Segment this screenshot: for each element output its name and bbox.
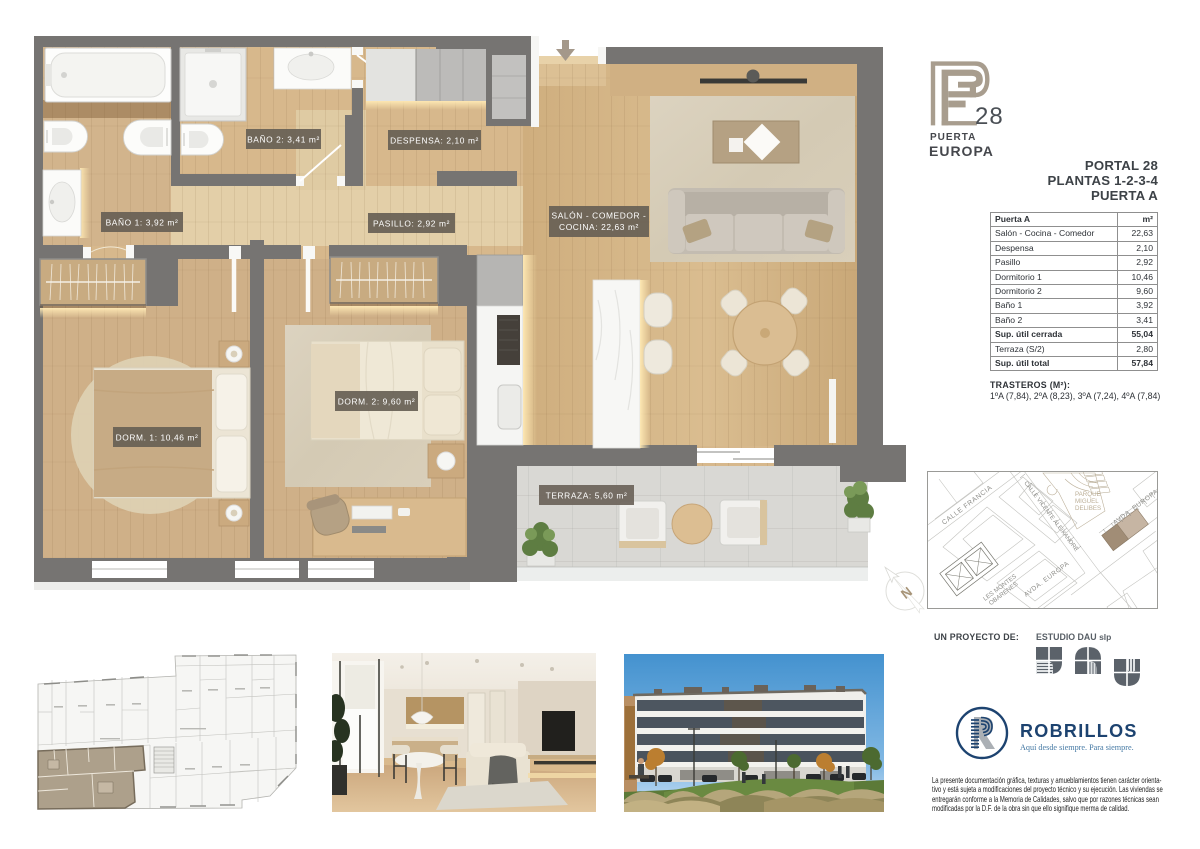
svg-text:MIGUEL: MIGUEL — [1075, 498, 1099, 505]
svg-text:SALÓN - COMEDOR -: SALÓN - COMEDOR - — [552, 211, 647, 221]
svg-text:BAÑO 2: 3,41 m²: BAÑO 2: 3,41 m² — [247, 135, 320, 145]
svg-text:BAÑO 1: 3,92 m²: BAÑO 1: 3,92 m² — [106, 218, 179, 228]
svg-text:PASILLO: 2,92 m²: PASILLO: 2,92 m² — [373, 219, 450, 229]
svg-text:COCINA: 22,63 m²: COCINA: 22,63 m² — [559, 222, 639, 232]
svg-text:DORM. 2: 9,60 m²: DORM. 2: 9,60 m² — [338, 397, 416, 407]
svg-text:DESPENSA: 2,10 m²: DESPENSA: 2,10 m² — [390, 136, 479, 146]
svg-text:PARQUE: PARQUE — [1075, 491, 1101, 498]
svg-text:DELIBES: DELIBES — [1075, 505, 1101, 512]
svg-text:TERRAZA: 5,60 m²: TERRAZA: 5,60 m² — [546, 491, 628, 501]
svg-text:DORM. 1: 10,46 m²: DORM. 1: 10,46 m² — [116, 433, 199, 443]
